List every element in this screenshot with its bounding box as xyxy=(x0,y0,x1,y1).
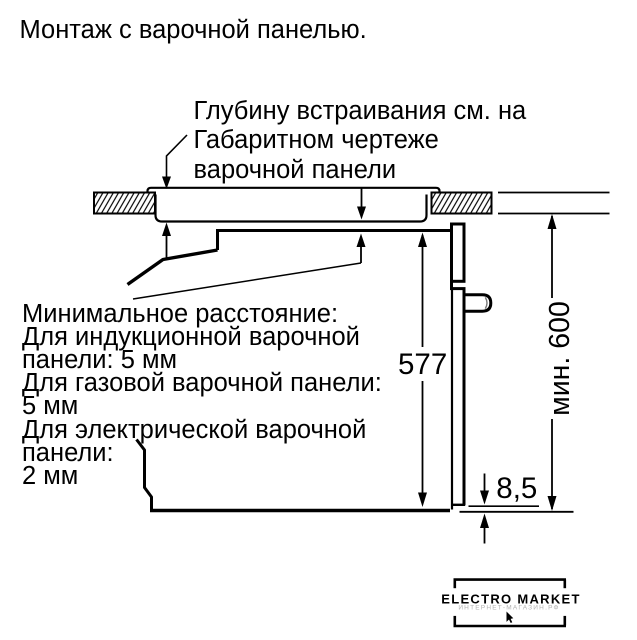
svg-text:ИНТЕРНЕТ-МАГАЗИН.РФ: ИНТЕРНЕТ-МАГАЗИН.РФ xyxy=(458,604,559,611)
svg-text:мин. 600: мин. 600 xyxy=(544,301,576,416)
